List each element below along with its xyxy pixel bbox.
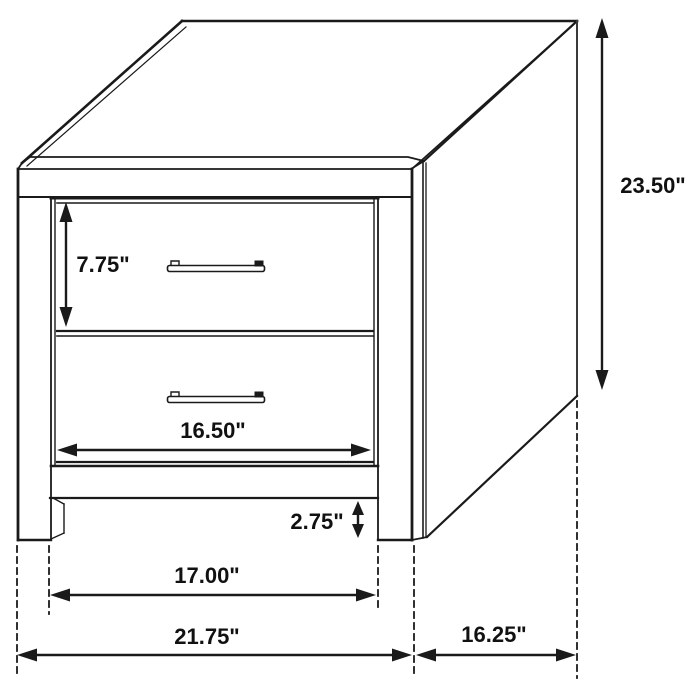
clearance-dimension-label: 2.75": [290, 511, 343, 533]
nightstand-top: [18, 21, 577, 197]
bottom-drawer-handle: [168, 392, 265, 403]
drawer-height-dimension-label: 7.75": [76, 254, 129, 276]
nightstand-line-art: [0, 0, 700, 700]
leg-span-dimension-label: 17.00": [174, 565, 239, 587]
nightstand-front-frame: [18, 169, 412, 540]
depth-dimension-arrow: [416, 649, 576, 662]
height-dimension-arrow: [596, 18, 609, 390]
overall-width-dimension-label: 21.75": [174, 626, 239, 648]
drawer-width-dimension-arrow: [57, 444, 371, 457]
left-leg: [18, 498, 64, 540]
overall-width-dimension-arrow: [17, 649, 412, 662]
top-drawer-handle: [168, 261, 265, 272]
furniture-dimension-diagram: 23.50" 7.75" 16.50" 2.75" 17.00" 21.75" …: [0, 0, 700, 700]
bottom-drawer: [57, 336, 373, 462]
right-leg: [378, 537, 427, 540]
clearance-dimension-arrow: [352, 501, 364, 538]
height-dimension-label: 23.50": [620, 175, 685, 197]
drawer-width-dimension-label: 16.50": [180, 420, 245, 442]
drawer-height-dimension-arrow: [60, 202, 73, 327]
depth-dimension-label: 16.25": [461, 624, 526, 646]
right-side-panel: [423, 21, 577, 538]
leg-span-dimension-arrow: [50, 589, 376, 602]
